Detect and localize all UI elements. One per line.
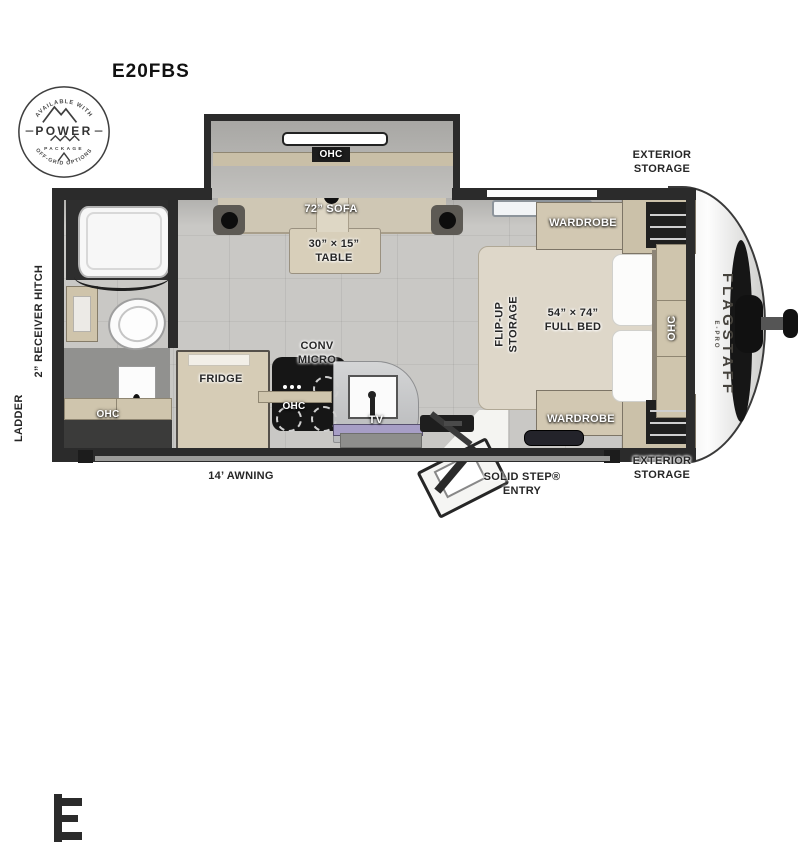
badge-power-text: POWER bbox=[35, 124, 92, 138]
full-bed-label: 54” × 74” FULL BED bbox=[532, 306, 614, 335]
ladder-rail bbox=[54, 794, 62, 842]
cooktop-knob-icon bbox=[290, 385, 294, 389]
fridge-label: FRIDGE bbox=[176, 372, 266, 386]
receiver-hitch-label: 2” RECEIVER HITCH bbox=[32, 240, 46, 402]
zigzag-icon bbox=[51, 136, 80, 141]
cabinet-divider bbox=[656, 356, 688, 357]
kitchen-ohc-label: OHC bbox=[268, 400, 320, 413]
bed-ohc-label: OHC bbox=[665, 308, 679, 348]
shelf-line bbox=[650, 434, 686, 436]
tv-label: TV bbox=[358, 413, 394, 427]
slideout-ohc-label: OHC bbox=[312, 148, 350, 161]
ladder-icon bbox=[26, 396, 62, 448]
cupholder-icon bbox=[439, 212, 456, 229]
shower-curtain bbox=[74, 262, 170, 291]
cover-handle bbox=[444, 421, 462, 426]
awning-rail bbox=[95, 456, 610, 461]
shelf-line bbox=[650, 410, 686, 412]
exterior-storage-label-bottom: EXTERIOR STORAGE bbox=[610, 454, 714, 483]
front-divider-wall bbox=[686, 196, 695, 452]
shelf-line bbox=[650, 422, 686, 424]
solid-step-entry-label: SOLID STEP® ENTRY bbox=[468, 470, 576, 499]
flip-up-storage-label: FLIP-UP STORAGE bbox=[493, 279, 522, 369]
wardrobe-label-bottom: WARDROBE bbox=[531, 412, 631, 426]
power-package-badge: AVAILABLE WITH POWER PACKAGE OFF-GRID OP… bbox=[16, 84, 112, 180]
ladder-rung bbox=[62, 815, 78, 822]
mirror bbox=[73, 296, 91, 332]
ladder-arm bbox=[62, 798, 82, 806]
cooktop-knob-icon bbox=[283, 385, 287, 389]
cabinet-shelving bbox=[646, 202, 690, 248]
top-wall-left bbox=[52, 188, 212, 200]
table-label: 30” × 15” TABLE bbox=[294, 237, 374, 266]
entry-mat bbox=[524, 430, 584, 446]
badge-package-text: PACKAGE bbox=[44, 146, 84, 152]
floorplan-page: { "title": "E20FBS", "badge": { "top": "… bbox=[0, 0, 800, 600]
cooktop-knob-icon bbox=[297, 385, 301, 389]
ladder-arm bbox=[62, 832, 82, 840]
awning-label: 14’ AWNING bbox=[186, 469, 296, 483]
brand-name: FLAGSTAFF bbox=[720, 240, 735, 430]
wardrobe-label-top: WARDROBE bbox=[533, 216, 633, 230]
hitch-coupler bbox=[783, 309, 798, 338]
sofa-label: 72” SOFA bbox=[296, 202, 366, 216]
bathroom-wall bbox=[168, 196, 178, 348]
bathroom-ohc-label: OHC bbox=[80, 408, 136, 421]
badge-arc-top-text: AVAILABLE WITH bbox=[35, 99, 94, 119]
cupholder-icon bbox=[221, 212, 238, 229]
cabinet-divider bbox=[656, 300, 688, 301]
slideout-window bbox=[282, 132, 388, 146]
brand-sub-name: E-PRO bbox=[712, 240, 720, 430]
plan-title: E20FBS bbox=[112, 61, 190, 83]
shelf-line bbox=[650, 214, 686, 216]
kitchen-sink-basin bbox=[340, 433, 422, 448]
exterior-storage-label-top: EXTERIOR STORAGE bbox=[610, 148, 714, 177]
brand-mark: FLAGSTAFF E-PRO bbox=[709, 240, 735, 430]
tent-icon bbox=[58, 153, 70, 161]
shelf-line bbox=[650, 238, 686, 240]
shelf-line bbox=[650, 226, 686, 228]
hitch-arm bbox=[761, 317, 785, 330]
ladder-label: LADDER bbox=[12, 382, 26, 454]
propane-cover bbox=[735, 295, 763, 353]
convection-microwave-label: CONV MICRO bbox=[291, 339, 343, 368]
bedroom-window bbox=[487, 190, 597, 197]
bathroom-vanity-base bbox=[62, 416, 172, 450]
awning-arm-left bbox=[78, 450, 93, 463]
refrigerator-top-panel bbox=[188, 354, 250, 366]
